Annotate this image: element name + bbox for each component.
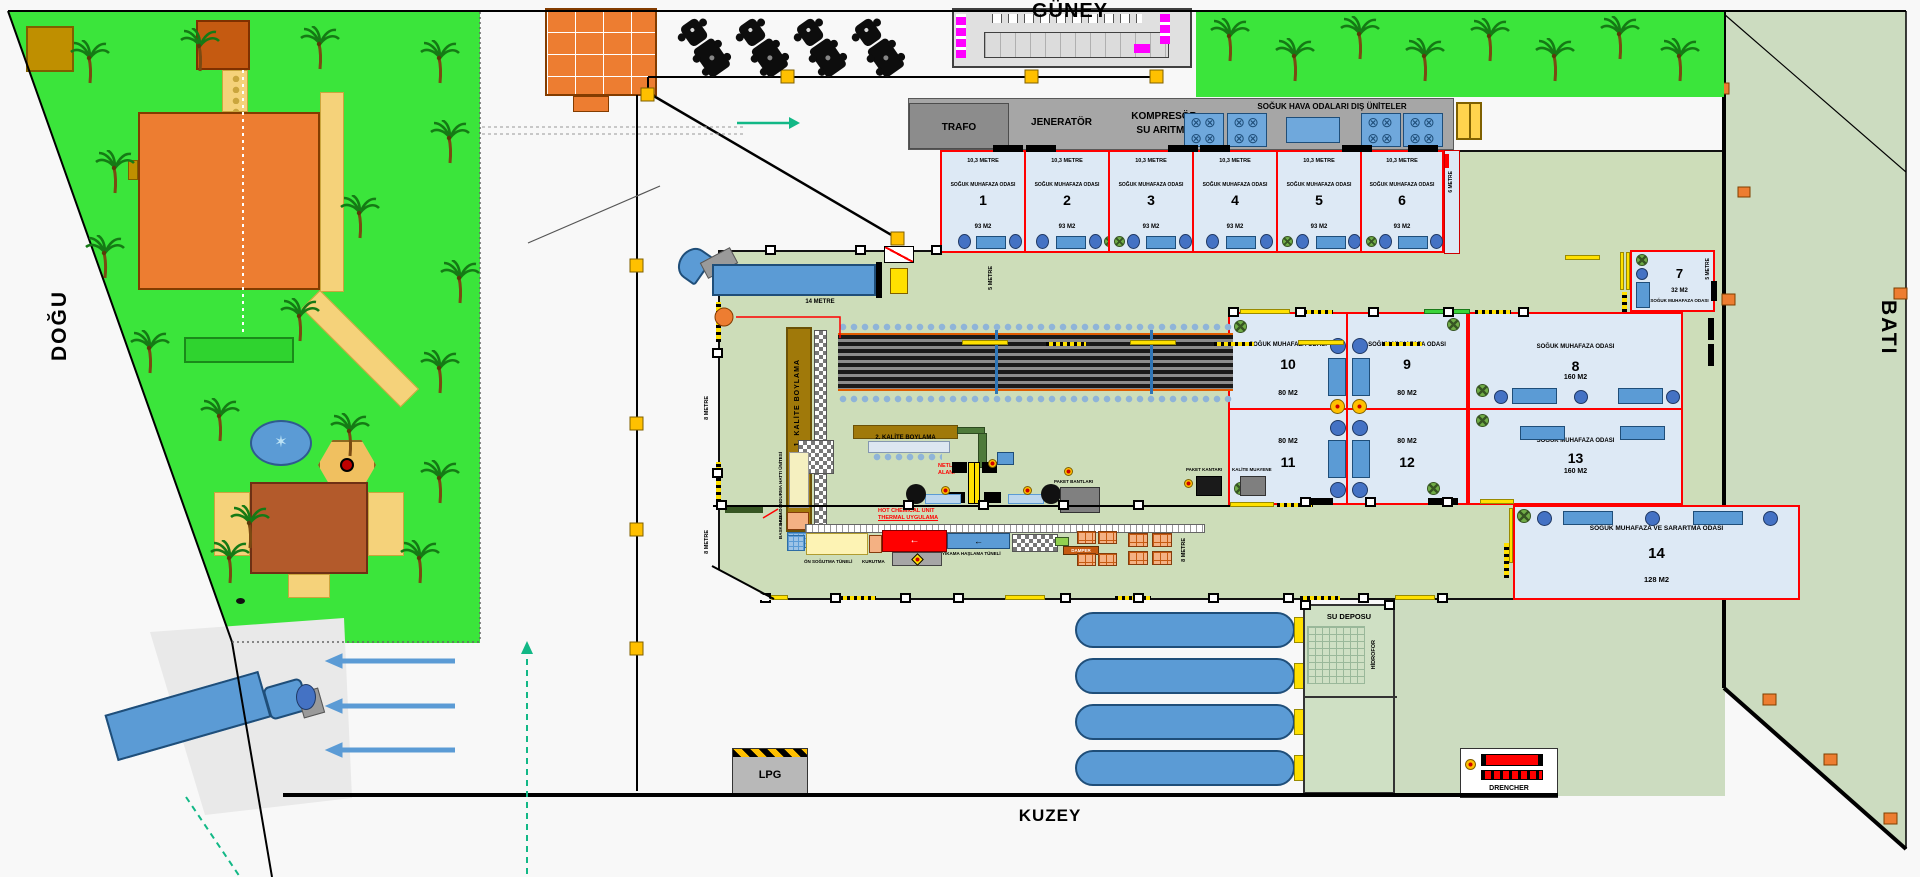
wall-bar xyxy=(1708,318,1714,340)
wall-dim-label: 8 METRE xyxy=(704,396,710,420)
truck-icon xyxy=(847,13,909,82)
netting-machine-block xyxy=(952,462,967,473)
palm-tree-icon xyxy=(1406,38,1444,81)
pallet-crates xyxy=(1152,551,1172,565)
hatch-strip xyxy=(1046,342,1086,346)
room-area: 160 M2 xyxy=(1470,374,1681,381)
truck-icon xyxy=(673,13,735,82)
pallet xyxy=(1328,358,1346,396)
truck-icon xyxy=(789,13,851,82)
room-width-label: 10,3 METRE xyxy=(1278,158,1360,164)
dock-gate xyxy=(884,246,914,263)
bin xyxy=(1537,511,1552,526)
door xyxy=(1365,497,1376,507)
internal-wall xyxy=(713,505,1235,507)
room-number: 13 xyxy=(1470,450,1681,466)
room-number: 1 xyxy=(942,192,1024,208)
north-lawn-palms xyxy=(1211,16,1699,81)
precool-label: ÖN SOĞUTMA TÜNELİ xyxy=(804,559,852,564)
pallet xyxy=(1693,511,1743,525)
pallet-crates xyxy=(1128,551,1148,565)
truck-trailer xyxy=(104,671,271,761)
pallet xyxy=(1316,236,1346,249)
door xyxy=(716,500,727,510)
compass-south: GÜNEY xyxy=(940,0,1200,23)
water-tank xyxy=(1075,750,1295,786)
hall-dim-label: 5 METRE xyxy=(988,266,994,290)
south-east-yard xyxy=(1395,600,1725,796)
entry-truck xyxy=(108,664,318,774)
hazard-stripe xyxy=(733,749,807,757)
wash-label: YIKAMA HAŞLAMA TÜNELİ xyxy=(942,551,1001,556)
room-type-label: SOĞUK MUHAFAZA ODASI xyxy=(1362,182,1442,188)
bin xyxy=(1036,234,1049,249)
hatch-strip xyxy=(840,596,876,600)
pallet xyxy=(1146,236,1176,249)
pallet xyxy=(1352,358,1370,396)
pallet xyxy=(1618,388,1663,404)
hazard-icon xyxy=(911,553,924,566)
garden-path-vertical xyxy=(320,92,344,292)
fan-icon: ⊗⊗⊗⊗ xyxy=(1233,114,1260,146)
drain xyxy=(1366,236,1377,247)
door xyxy=(1368,307,1379,317)
pallet xyxy=(1226,236,1256,249)
brick-building xyxy=(545,8,657,96)
dock-bumper xyxy=(1168,145,1198,152)
door xyxy=(855,245,866,255)
compass-east: DOĞU xyxy=(48,290,72,361)
condenser-fan-unit: ⊗⊗⊗⊗ xyxy=(1361,113,1401,147)
bin xyxy=(958,234,971,249)
room7-dim-label: 5 METRE xyxy=(1705,258,1711,280)
roller-row xyxy=(838,394,1233,404)
valve xyxy=(1064,467,1073,476)
compass-west: BATI xyxy=(1876,300,1900,355)
bin xyxy=(1127,234,1140,249)
wall-dim-label: 8 METRE xyxy=(704,530,710,554)
water-tank xyxy=(1075,658,1295,694)
valve xyxy=(1330,399,1345,414)
package-scale-unit xyxy=(1196,476,1222,496)
bin xyxy=(1636,268,1648,280)
hedge xyxy=(184,337,294,363)
dock-bumper xyxy=(1200,145,1230,152)
room-width-label: 10,3 METRE xyxy=(1362,158,1442,164)
bin xyxy=(1089,234,1102,249)
room-area: 93 M2 xyxy=(1278,224,1360,230)
house-annex xyxy=(128,160,138,180)
rear-house-porch xyxy=(288,574,330,598)
elevator-strip xyxy=(814,330,827,545)
wall-bar xyxy=(1711,281,1717,301)
drain xyxy=(1517,509,1531,523)
door-ramp xyxy=(1620,252,1624,290)
fan-icon: ⊗⊗⊗⊗ xyxy=(1367,114,1394,146)
drain xyxy=(1282,236,1293,247)
room-area: 93 M2 xyxy=(1026,224,1108,230)
door xyxy=(1208,593,1219,603)
palm-tree-icon xyxy=(1661,38,1699,81)
entry-marker xyxy=(296,684,316,710)
electrical-cabinet xyxy=(1456,102,1482,140)
room-width-label: 10,3 METRE xyxy=(942,158,1024,164)
palm-tree-icon xyxy=(1276,38,1314,81)
palm-tree-icon xyxy=(1536,38,1574,81)
cold-room-7: 7 32 M2 SOĞUK MUHAFAZA ODASI 5 METRE xyxy=(1630,250,1715,312)
room-number: 5 xyxy=(1278,192,1360,208)
bin xyxy=(1009,234,1022,249)
cold-room-8: SOĞUK MUHAFAZA ODASI 8 160 M2 xyxy=(1468,312,1683,410)
drain xyxy=(1114,236,1125,247)
dock-truck-trailer xyxy=(712,264,876,296)
pump-grid xyxy=(1307,626,1365,684)
hatch-strip xyxy=(1475,310,1511,314)
door xyxy=(1133,593,1144,603)
door xyxy=(1228,307,1239,317)
room-type-label: SOĞUK MUHAFAZA ODASI xyxy=(1026,182,1108,188)
bin xyxy=(1379,234,1392,249)
door-ramp xyxy=(1480,499,1514,504)
thermal-burner xyxy=(892,552,942,566)
condenser-plain-unit xyxy=(1286,117,1340,143)
bin xyxy=(1179,234,1192,249)
utility-strip: TRAFO JENERATÖR KOMPRESÖR SU ARITMA SOĞU… xyxy=(908,98,1454,150)
condenser-fan-unit: ⊗⊗⊗⊗ xyxy=(1184,113,1224,147)
condenser-fan-unit: ⊗⊗⊗⊗ xyxy=(1227,113,1267,147)
cold-room-3: 10,3 METRE SOĞUK MUHAFAZA ODASI 3 93 M2 xyxy=(1108,150,1194,253)
package-scale-label: PAKET KANTARI xyxy=(1186,467,1222,472)
north-lawn xyxy=(1196,12,1724,97)
sorting-pad xyxy=(1055,537,1069,546)
cold-room-14: SOĞUK MUHAFAZA VE SARARTMA ODASI 14 128 … xyxy=(1513,505,1800,600)
drain-grate xyxy=(1012,534,1058,552)
room-type-label: SOĞUK MUHAFAZA ODASI xyxy=(1646,298,1713,303)
bin xyxy=(1260,234,1273,249)
door-ramp xyxy=(1298,340,1344,345)
fan-icon: ⊗⊗⊗⊗ xyxy=(1409,114,1436,146)
dock-bumper xyxy=(1408,145,1438,152)
hatch-strip xyxy=(1622,292,1627,312)
booster-pump-label: HİDROFOR xyxy=(1371,640,1377,669)
garden-path xyxy=(222,70,248,112)
press-label: BASKILAMA xyxy=(778,512,783,539)
valve xyxy=(1352,399,1367,414)
fire-marker xyxy=(1445,154,1449,168)
door xyxy=(1283,593,1294,603)
west-strip xyxy=(1726,11,1906,849)
yard-dim-label: 8 METRE xyxy=(1181,538,1187,562)
door xyxy=(1133,500,1144,510)
trafo-room: TRAFO xyxy=(909,103,1009,149)
bin xyxy=(1352,482,1368,498)
green-bench xyxy=(725,507,763,513)
bin xyxy=(1296,234,1309,249)
bin xyxy=(1330,420,1346,436)
bin xyxy=(1206,234,1219,249)
door-ramp xyxy=(1240,309,1290,314)
cold-room-4: 10,3 METRE SOĞUK MUHAFAZA ODASI 4 93 M2 xyxy=(1192,150,1278,253)
condenser-fan-unit: ⊗⊗⊗⊗ xyxy=(1403,113,1443,147)
hatch-strip xyxy=(716,302,721,342)
dry-label: KURUTMA xyxy=(862,559,885,564)
roller-row xyxy=(872,452,942,462)
pond: ✶ xyxy=(250,420,312,466)
door xyxy=(712,348,723,358)
drencher-manifold xyxy=(1481,770,1543,780)
wall-bar xyxy=(1708,344,1714,366)
palm-tree-icon xyxy=(1471,18,1509,61)
rear-house xyxy=(250,482,368,574)
valve xyxy=(1184,479,1193,488)
door xyxy=(953,593,964,603)
room-type-label: SOĞUK MUHAFAZA ODASI xyxy=(942,182,1024,188)
bin xyxy=(1645,511,1660,526)
fan-icon: ⊗⊗⊗⊗ xyxy=(1190,114,1217,146)
door-ramp xyxy=(1130,340,1176,345)
door-ramp xyxy=(1626,252,1630,290)
bin xyxy=(1574,390,1588,404)
cold-room-2: 10,3 METRE SOĞUK MUHAFAZA ODASI 2 93 M2 xyxy=(1024,150,1110,253)
hatch-strip xyxy=(1382,342,1422,346)
pallet-crates xyxy=(1128,533,1148,547)
door xyxy=(1300,600,1311,610)
door-ramp xyxy=(1395,595,1435,600)
dock-bumper xyxy=(1026,145,1056,152)
door-ramp xyxy=(1230,502,1274,507)
hatch-strip xyxy=(1214,342,1254,346)
room-type-label: SOĞUK MUHAFAZA VE SARARTMA ODASI xyxy=(1515,525,1798,532)
room-type-label: SOĞUK MUHAFAZA ODASI xyxy=(1470,344,1681,350)
pallet xyxy=(1512,388,1557,404)
room-area: 93 M2 xyxy=(1362,224,1442,230)
room-number: 8 xyxy=(1470,358,1681,374)
room-type-label: SOĞUK MUHAFAZA ODASI xyxy=(1194,182,1276,188)
precool-tunnel xyxy=(806,533,868,555)
star-icon: ✶ xyxy=(274,434,287,451)
cold-room-5: 10,3 METRE SOĞUK MUHAFAZA ODASI 5 93 M2 xyxy=(1276,150,1362,253)
belt xyxy=(1008,494,1044,504)
corridor-dim-label: 6 METRE xyxy=(1448,171,1454,193)
lpg-station: LPG xyxy=(732,748,808,794)
pallet xyxy=(976,236,1006,249)
drain xyxy=(1427,482,1440,495)
bin xyxy=(1666,390,1680,404)
lpg-label: LPG xyxy=(733,769,807,781)
pallet xyxy=(1328,440,1346,478)
room-area: 160 M2 xyxy=(1470,468,1681,475)
room-area: 93 M2 xyxy=(1110,224,1192,230)
bin xyxy=(1763,511,1778,526)
door-ramp xyxy=(1005,595,1045,600)
room-area: 93 M2 xyxy=(1194,224,1276,230)
door xyxy=(765,245,776,255)
truck-icon xyxy=(731,13,793,82)
room-number: 6 xyxy=(1362,192,1442,208)
pallet xyxy=(1636,282,1650,308)
door-ramp xyxy=(1565,255,1600,260)
tray-conveyor xyxy=(805,524,1205,533)
door xyxy=(931,245,942,255)
depot-wall xyxy=(1305,696,1397,698)
bin xyxy=(1352,420,1368,436)
room-width-label: 10,3 METRE xyxy=(1194,158,1276,164)
door xyxy=(1295,307,1306,317)
ladybug-icon xyxy=(340,458,354,472)
drencher-label: DRENCHER xyxy=(1461,785,1557,792)
quality-inspection-label: KALİTE MUAYENE xyxy=(1232,467,1272,472)
room-number: 7 xyxy=(1646,266,1713,281)
quality2-machine: 2. KALİTE BOYLAMA xyxy=(853,425,958,439)
door xyxy=(712,468,723,478)
room-area: 128 M2 xyxy=(1515,575,1798,584)
quality1-label: 1. KALİTE BOYLAMA xyxy=(794,359,801,446)
water-depot: SU DEPOSU HİDROFOR xyxy=(1303,604,1395,794)
garden-shed xyxy=(26,26,74,72)
door xyxy=(1358,593,1369,603)
hatch-strip xyxy=(1504,543,1509,578)
door xyxy=(903,500,914,510)
belt xyxy=(925,494,961,504)
outdoor-units-label: SOĞUK HAVA ODALARI DIŞ ÜNİTELER xyxy=(1209,102,1455,111)
room-type-label: SOĞUK MUHAFAZA ODASI xyxy=(1278,182,1360,188)
door xyxy=(830,593,841,603)
pallet xyxy=(1352,440,1370,478)
door xyxy=(1060,593,1071,603)
pallet xyxy=(1398,236,1428,249)
valve xyxy=(1023,486,1032,495)
room-number: 14 xyxy=(1515,545,1798,562)
pallet xyxy=(1056,236,1086,249)
site-plan: ✶ TRAFO JENERATÖR KOMPRESÖR SU ARITMA SO… xyxy=(0,0,1920,877)
door xyxy=(978,500,989,510)
palm-tree-icon xyxy=(1341,16,1379,59)
palm-tree-icon xyxy=(1601,16,1639,59)
packing-belts-label: PAKET BANTLARI xyxy=(1054,479,1093,484)
door-ramp xyxy=(962,340,1008,345)
door xyxy=(1437,593,1448,603)
garden-outbuilding xyxy=(196,20,250,70)
drain xyxy=(1447,318,1460,331)
dock-bumper xyxy=(1342,145,1372,152)
delivery-trucks xyxy=(673,13,909,82)
trafo-label: TRAFO xyxy=(942,122,976,133)
room-number: 3 xyxy=(1110,192,1192,208)
compass-north: KUZEY xyxy=(950,806,1150,826)
drain xyxy=(1636,254,1648,266)
room-width-label: 10,3 METRE xyxy=(1026,158,1108,164)
door xyxy=(1518,307,1529,317)
pallet-crates xyxy=(1077,531,1096,544)
pallet xyxy=(1563,511,1613,525)
valve xyxy=(988,459,997,468)
dock-bumper xyxy=(993,145,1023,152)
rear-house-wing-right xyxy=(368,492,404,556)
dock-dim-label: 14 METRE xyxy=(765,299,875,305)
drain xyxy=(1234,320,1247,333)
pallet xyxy=(1620,426,1665,440)
door xyxy=(1058,500,1069,510)
dry-unit xyxy=(869,535,882,553)
bin xyxy=(1352,338,1368,354)
room-area: 32 M2 xyxy=(1646,288,1713,294)
water-depot-label: SU DEPOSU xyxy=(1305,612,1393,621)
room-area: 93 M2 xyxy=(942,224,1024,230)
roller-row xyxy=(838,322,1233,332)
bin xyxy=(1330,482,1346,498)
door xyxy=(1443,307,1454,317)
wash-tunnel: ← xyxy=(947,533,1010,549)
door xyxy=(1442,497,1453,507)
hall-floor-north-east xyxy=(1448,150,1725,252)
water-tank xyxy=(1075,612,1295,648)
valve xyxy=(941,486,950,495)
dock-pad xyxy=(890,268,908,294)
drain xyxy=(1476,384,1489,397)
thermal-unit: ← xyxy=(882,530,947,552)
dock-buffer xyxy=(876,262,882,298)
hot-chemical-label-2: THERMAL UYGULAMA xyxy=(878,515,938,521)
cold-room-6: 10,3 METRE SOĞUK MUHAFAZA ODASI 6 93 M2 xyxy=(1360,150,1444,253)
pallet-crates xyxy=(1098,531,1117,544)
room-type-label: SOĞUK MUHAFAZA ODASI xyxy=(1110,182,1192,188)
drain xyxy=(1476,414,1489,427)
room-width-label: 10,3 METRE xyxy=(1110,158,1192,164)
cold-room-1: 10,3 METRE SOĞUK MUHAFAZA ODASI 1 93 M2 xyxy=(940,150,1026,253)
door xyxy=(900,593,911,603)
freezer-line-box xyxy=(789,452,809,508)
bin xyxy=(1494,390,1508,404)
equipment-box xyxy=(997,452,1014,465)
door xyxy=(1384,600,1395,610)
door xyxy=(760,593,771,603)
rear-house-wing-left xyxy=(214,492,250,556)
valve xyxy=(1465,759,1476,770)
generator-label: JENERATÖR xyxy=(1014,117,1109,128)
drencher-pump xyxy=(1481,754,1543,766)
brick-building-annex xyxy=(573,96,609,112)
pallet xyxy=(1520,426,1565,440)
door-ramp xyxy=(1509,508,1513,563)
main-house xyxy=(138,112,320,290)
cold-room-13: SOĞUK MUHAFAZA ODASI 13 160 M2 xyxy=(1468,408,1683,505)
room-number: 4 xyxy=(1194,192,1276,208)
palm-tree-icon xyxy=(1211,18,1249,61)
insect-icon xyxy=(236,598,245,604)
netting-machine-core xyxy=(968,462,980,504)
door xyxy=(1300,497,1311,507)
pallet-crates xyxy=(1152,533,1172,547)
bin xyxy=(1430,234,1443,249)
water-tank xyxy=(1075,704,1295,740)
dock-marker-small xyxy=(1134,44,1150,53)
crate-stack xyxy=(787,535,805,551)
quality-inspection-unit xyxy=(1240,476,1266,496)
pallet-crates xyxy=(1077,553,1096,566)
drencher-station: DRENCHER xyxy=(1460,748,1558,798)
pallet-crates xyxy=(1098,553,1117,566)
room-number: 2 xyxy=(1026,192,1108,208)
